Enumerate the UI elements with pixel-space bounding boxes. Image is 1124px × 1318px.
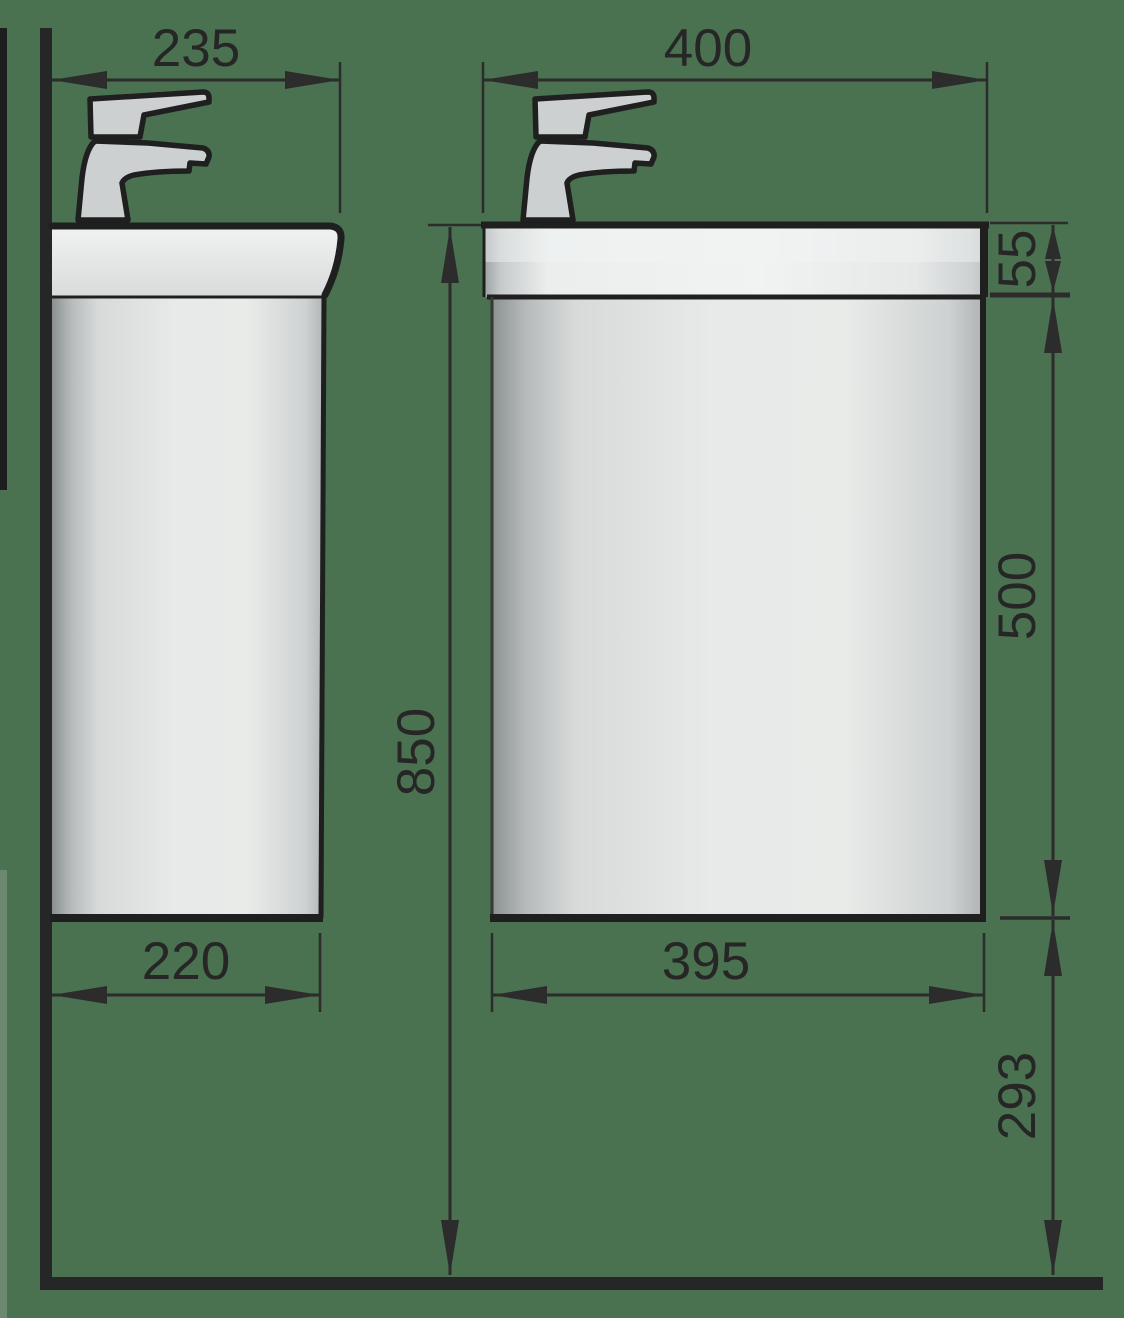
front-cabinet	[491, 297, 984, 918]
side-cabinet	[52, 297, 325, 918]
wall-line	[40, 28, 52, 1290]
dim-label-235: 235	[152, 19, 240, 78]
dim-label-293: 293	[988, 1052, 1047, 1140]
side-basin	[52, 223, 342, 297]
dim-label-395: 395	[662, 932, 750, 991]
left-border-line-faint	[0, 870, 7, 1318]
drawing-canvas: 235 400 55 500	[0, 0, 1124, 1318]
technical-drawing: 235 400 55 500	[0, 0, 1124, 1318]
dim-label-850: 850	[387, 708, 446, 796]
dim-label-220: 220	[142, 932, 230, 991]
side-cabinet-right-edge	[321, 296, 324, 918]
dim-label-400: 400	[664, 19, 752, 78]
dim-label-500: 500	[988, 552, 1047, 640]
dim-label-55: 55	[988, 230, 1047, 289]
left-border-line	[0, 28, 7, 490]
floor-line	[40, 1277, 1103, 1290]
